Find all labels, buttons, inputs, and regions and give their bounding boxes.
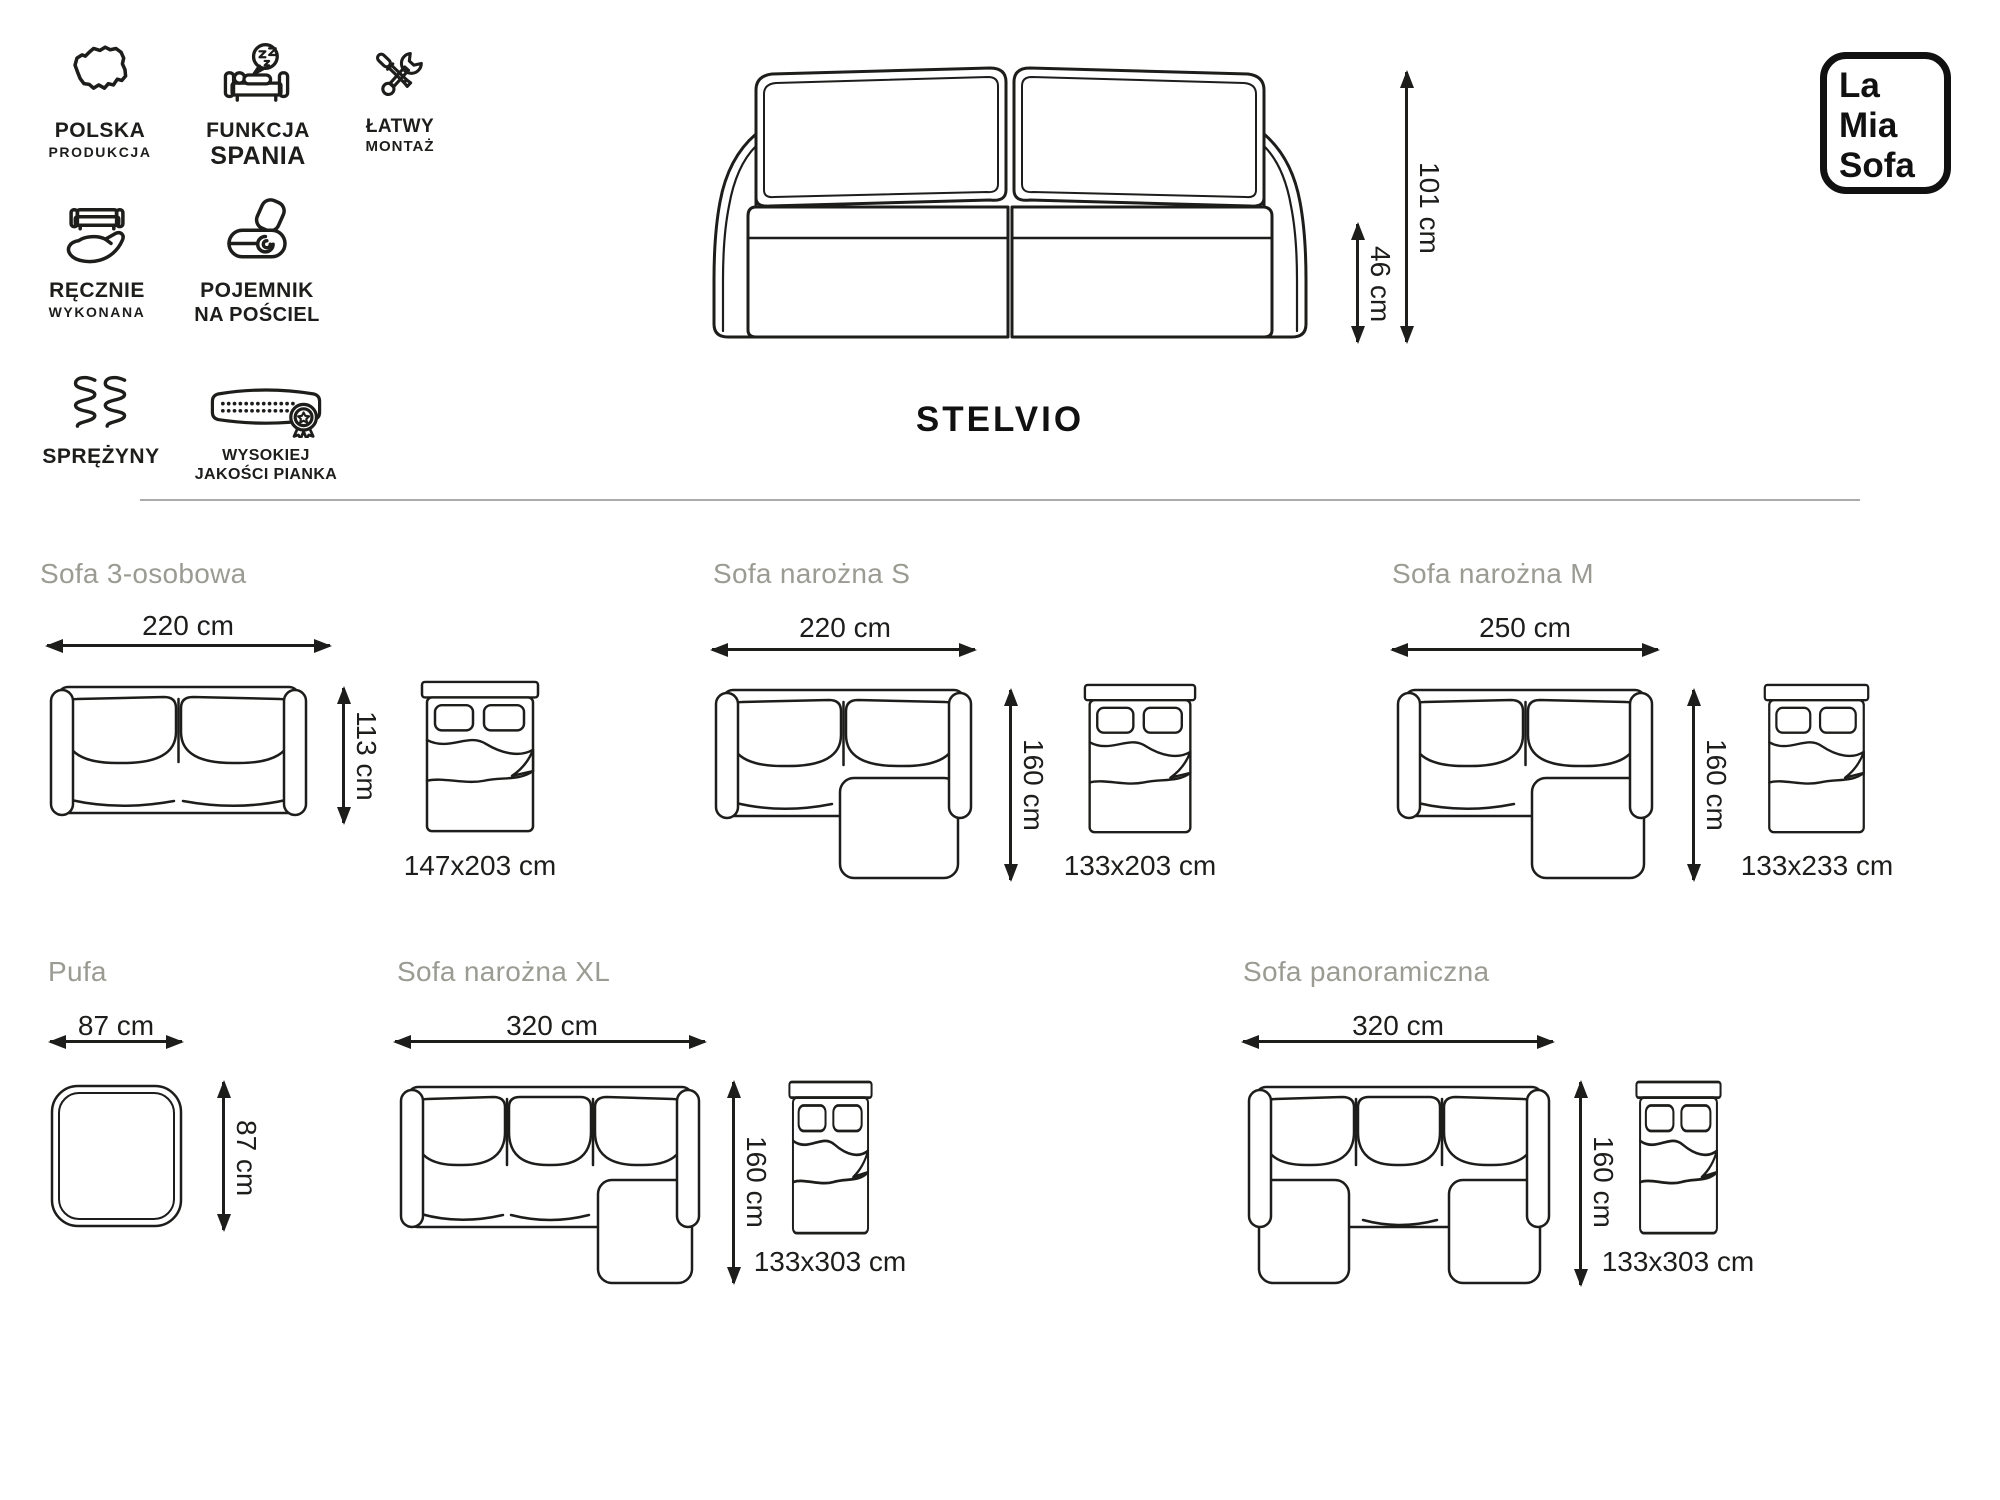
bed-icon [1083, 683, 1197, 836]
feature-label: POLSKA [55, 119, 146, 143]
depth-dimension-label: 160 cm [740, 1132, 772, 1232]
feature-recznie-wykonana: RĘCZNIE WYKONANA [35, 200, 159, 321]
brand-logo-line: La [1839, 66, 1944, 106]
sofa-top-view-drawing [1243, 1080, 1555, 1285]
brand-logo-line: Mia [1839, 106, 1944, 146]
width-dimension-arrow [50, 1040, 182, 1043]
width-dimension-label: 320 cm [1298, 1010, 1498, 1042]
variant-title: Sofa narożna M [1392, 558, 1594, 590]
bed-size-label: 147x203 cm [380, 850, 580, 882]
depth-dimension-label: 160 cm [1587, 1132, 1619, 1232]
width-dimension-arrow [1243, 1040, 1553, 1043]
height-dimension-label: 101 cm [1413, 158, 1445, 258]
width-dimension-label: 220 cm [745, 612, 945, 644]
springs-icon [67, 374, 135, 436]
width-dimension-arrow [47, 644, 330, 647]
width-dimension-arrow [712, 648, 975, 651]
feature-sublabel: PRODUKCJA [48, 143, 151, 161]
brand-logo: La Mia Sofa [1820, 52, 1951, 194]
depth-dimension-arrow [1692, 690, 1695, 880]
seat-height-dimension-arrow [1356, 224, 1359, 342]
bed-icon [420, 680, 540, 835]
feature-funkcja-spania: FUNKCJA SPANIA [193, 40, 323, 170]
handmade-icon [62, 200, 132, 270]
feature-polska-produkcja: POLSKA PRODUKCJA [38, 42, 162, 161]
bed-size-label: 133x233 cm [1717, 850, 1917, 882]
height-dimension-arrow [1405, 72, 1408, 342]
sofa-top-view-drawing [395, 1080, 705, 1285]
poland-map-icon [68, 42, 132, 110]
feature-latwy-montaz: ŁATWY MONTAŻ [339, 44, 461, 156]
depth-dimension-label: 160 cm [1017, 735, 1049, 835]
feature-label: POJEMNIK [200, 279, 314, 303]
bed-icon [788, 1080, 873, 1237]
brand-logo-line: Sofa [1839, 146, 1944, 186]
width-dimension-arrow [395, 1040, 705, 1043]
infographic-page: POLSKA PRODUKCJA FUNKCJA SPANIA [0, 0, 2000, 1500]
bedding-storage-icon [222, 196, 292, 270]
sofa-front-view-drawing [690, 38, 1330, 345]
feature-label: SPRĘŻYNY [42, 445, 159, 469]
feature-label: FUNKCJA [206, 119, 310, 143]
feature-sublabel: MONTAŻ [365, 138, 434, 156]
variant-title: Sofa narożna S [713, 558, 910, 590]
depth-dimension-label: 87 cm [230, 1116, 262, 1200]
sleep-function-icon [221, 40, 295, 110]
feature-label: WYSOKIEJ [222, 446, 310, 465]
feature-sublabel: SPANIA [210, 143, 306, 170]
product-name: STELVIO [800, 400, 1200, 440]
variant-title: Pufa [48, 956, 107, 988]
feature-pojemnik-na-posciel: POJEMNIK NA POŚCIEL [186, 196, 328, 327]
variant-title: Sofa 3-osobowa [40, 558, 247, 590]
bed-size-label: 133x303 cm [730, 1246, 930, 1278]
depth-dimension-arrow [1009, 690, 1012, 880]
bed-icon [1635, 1080, 1722, 1237]
sofa-top-view-drawing [45, 680, 312, 825]
feature-sublabel: WYKONANA [49, 303, 146, 321]
depth-dimension-label: 113 cm [350, 706, 382, 806]
width-dimension-label: 220 cm [88, 610, 288, 642]
feature-label: ŁATWY [366, 116, 434, 138]
feature-wysokiej-jakosci-pianka: WYSOKIEJ JAKOŚCI PIANKA [181, 382, 351, 484]
section-divider [140, 499, 1860, 501]
feature-sublabel: NA POŚCIEL [194, 303, 320, 327]
foam-quality-icon [205, 382, 327, 438]
depth-dimension-arrow [342, 688, 345, 823]
bed-icon [1763, 683, 1870, 836]
depth-dimension-label: 160 cm [1700, 735, 1732, 835]
width-dimension-arrow [1392, 648, 1658, 651]
bed-size-label: 133x203 cm [1040, 850, 1240, 882]
feature-sublabel: JAKOŚCI PIANKA [195, 465, 338, 484]
pouf-top-view-drawing [48, 1082, 185, 1230]
variant-title: Sofa panoramiczna [1243, 956, 1489, 988]
width-dimension-label: 320 cm [452, 1010, 652, 1042]
feature-label: RĘCZNIE [49, 279, 145, 303]
bed-size-label: 133x303 cm [1578, 1246, 1778, 1278]
width-dimension-label: 87 cm [16, 1010, 216, 1042]
sofa-top-view-drawing [710, 683, 977, 883]
feature-sprezyny: SPRĘŻYNY [40, 374, 162, 469]
variant-title: Sofa narożna XL [397, 956, 610, 988]
easy-assembly-icon [369, 44, 431, 108]
depth-dimension-arrow [222, 1082, 225, 1230]
width-dimension-label: 250 cm [1425, 612, 1625, 644]
seat-height-dimension-label: 46 cm [1364, 238, 1396, 330]
sofa-top-view-drawing [1392, 683, 1658, 883]
